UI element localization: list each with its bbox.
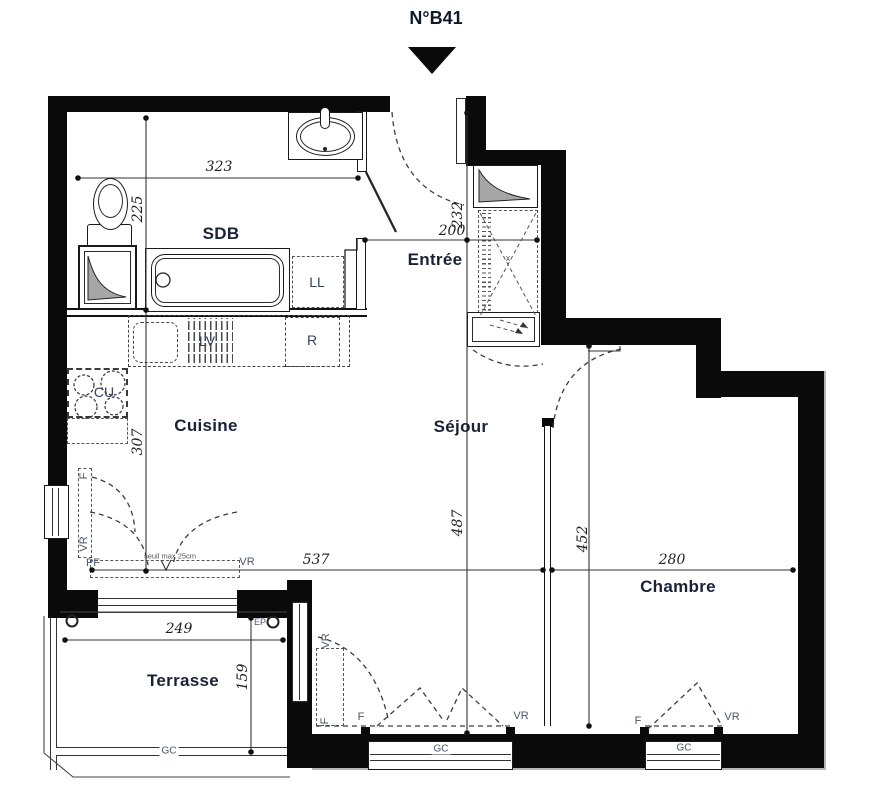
dim-terrasse-height: 159	[235, 664, 251, 691]
dimension-dots	[62, 110, 796, 755]
wall-segment	[721, 371, 805, 397]
sejour-chambre-partition	[544, 426, 551, 726]
window-tag-f: F	[635, 715, 642, 727]
toilet-bowl	[98, 184, 123, 218]
wall-outline	[824, 371, 826, 770]
entry-door	[473, 165, 538, 208]
dishwasher-label: LV	[199, 333, 215, 349]
entry-door-jamb	[456, 98, 466, 164]
dim-terrasse-width: 249	[166, 621, 193, 637]
dim-sejour-height: 487	[450, 510, 466, 537]
guardrail-tag-gc: GC	[675, 743, 694, 754]
room-label-sejour: Séjour	[434, 417, 489, 437]
bathtub-inner	[155, 258, 280, 303]
wall-segment	[798, 371, 824, 768]
window-jamb	[361, 727, 370, 737]
window-glazing	[52, 488, 53, 536]
hob-label: CU	[94, 384, 114, 400]
north-marker-icon	[408, 47, 456, 74]
hob-cabinet	[67, 418, 128, 444]
closet-hatch	[480, 213, 491, 315]
washing-machine-label: LL	[309, 274, 325, 290]
terrace-door-shutter-zone	[316, 648, 344, 726]
room-label-chambre: Chambre	[640, 577, 716, 597]
window-glazing	[58, 488, 59, 536]
duct-box-inner	[84, 251, 131, 304]
wall-segment	[48, 537, 67, 618]
window-glazing	[299, 604, 300, 700]
closet-x-mark: x	[506, 253, 511, 263]
downpipe-tag-ep: EP	[254, 617, 266, 627]
room-label-cuisine: Cuisine	[174, 416, 238, 436]
shutter-tag-vr: VR	[724, 711, 739, 723]
left-window-swing-arc	[92, 477, 135, 532]
threshold-note: seuil max 25cm	[144, 552, 196, 561]
floor-plan: N°B41	[0, 0, 872, 800]
window-glazing	[647, 754, 720, 755]
window-glazing	[370, 760, 511, 761]
window-jamb	[506, 727, 515, 737]
wall-segment	[466, 96, 486, 166]
entry-door-swing-arc	[392, 112, 464, 205]
french-door-shutter-zone	[90, 560, 240, 578]
room-label-terrasse: Terrasse	[147, 671, 219, 691]
dim-chambre-width: 280	[659, 552, 686, 568]
shutter-tag-vr: VR	[320, 633, 332, 648]
terrace-post-icon	[268, 617, 279, 628]
window-glazing	[98, 598, 237, 599]
faucet-icon	[320, 107, 330, 129]
chambre-door-jamb	[588, 346, 620, 351]
fridge-label: R	[307, 332, 317, 348]
window-glazing	[98, 605, 237, 606]
shutter-tag-vr: VR	[239, 556, 254, 568]
shutter-tag-vr: VR	[78, 536, 90, 551]
window-tag-f: F	[319, 718, 331, 725]
shutter-tag-vr: VR	[513, 710, 528, 722]
plan-title: N°B41	[409, 8, 462, 29]
window-glazing	[647, 760, 720, 761]
dim-sdb-width: 323	[206, 159, 233, 175]
entree-cabinet-inner	[472, 317, 535, 342]
dim-sdb-height: 225	[130, 196, 146, 223]
sdb-door-leaf	[366, 172, 396, 232]
window-tag-f: F	[358, 711, 365, 723]
wall-segment	[696, 345, 721, 398]
dim-sejour-width: 537	[303, 552, 330, 568]
dim-entree-width: 200	[439, 223, 466, 239]
linework-svg	[0, 0, 872, 800]
wall-segment	[48, 96, 390, 112]
french-door-tag-pf: PF	[86, 557, 100, 569]
wall-segment	[541, 318, 721, 345]
cabinet-arc	[473, 350, 543, 366]
wall-segment	[67, 590, 98, 618]
window-frame	[292, 602, 308, 702]
sejour-window-fold	[447, 688, 503, 726]
dim-cuisine-height: 307	[130, 429, 146, 456]
kitchen-sink	[133, 322, 178, 363]
guardrail-tag-gc: GC	[160, 746, 179, 757]
dim-chambre-height: 452	[575, 526, 591, 553]
chambre-door-swing-arc	[553, 349, 621, 428]
wall-segment	[48, 96, 67, 487]
window-jamb	[714, 727, 723, 737]
window-jamb	[640, 727, 649, 737]
window-frame	[44, 485, 69, 539]
room-label-entree: Entrée	[408, 250, 463, 270]
window-glazing	[98, 612, 237, 613]
guardrail-tag-gc: GC	[432, 744, 451, 755]
window-tag-f: F	[78, 473, 90, 480]
chambre-window-fold	[648, 683, 721, 729]
room-label-sdb: SDB	[203, 224, 240, 244]
sejour-window-fold	[377, 688, 443, 726]
sdb-partition-wall	[356, 238, 366, 310]
